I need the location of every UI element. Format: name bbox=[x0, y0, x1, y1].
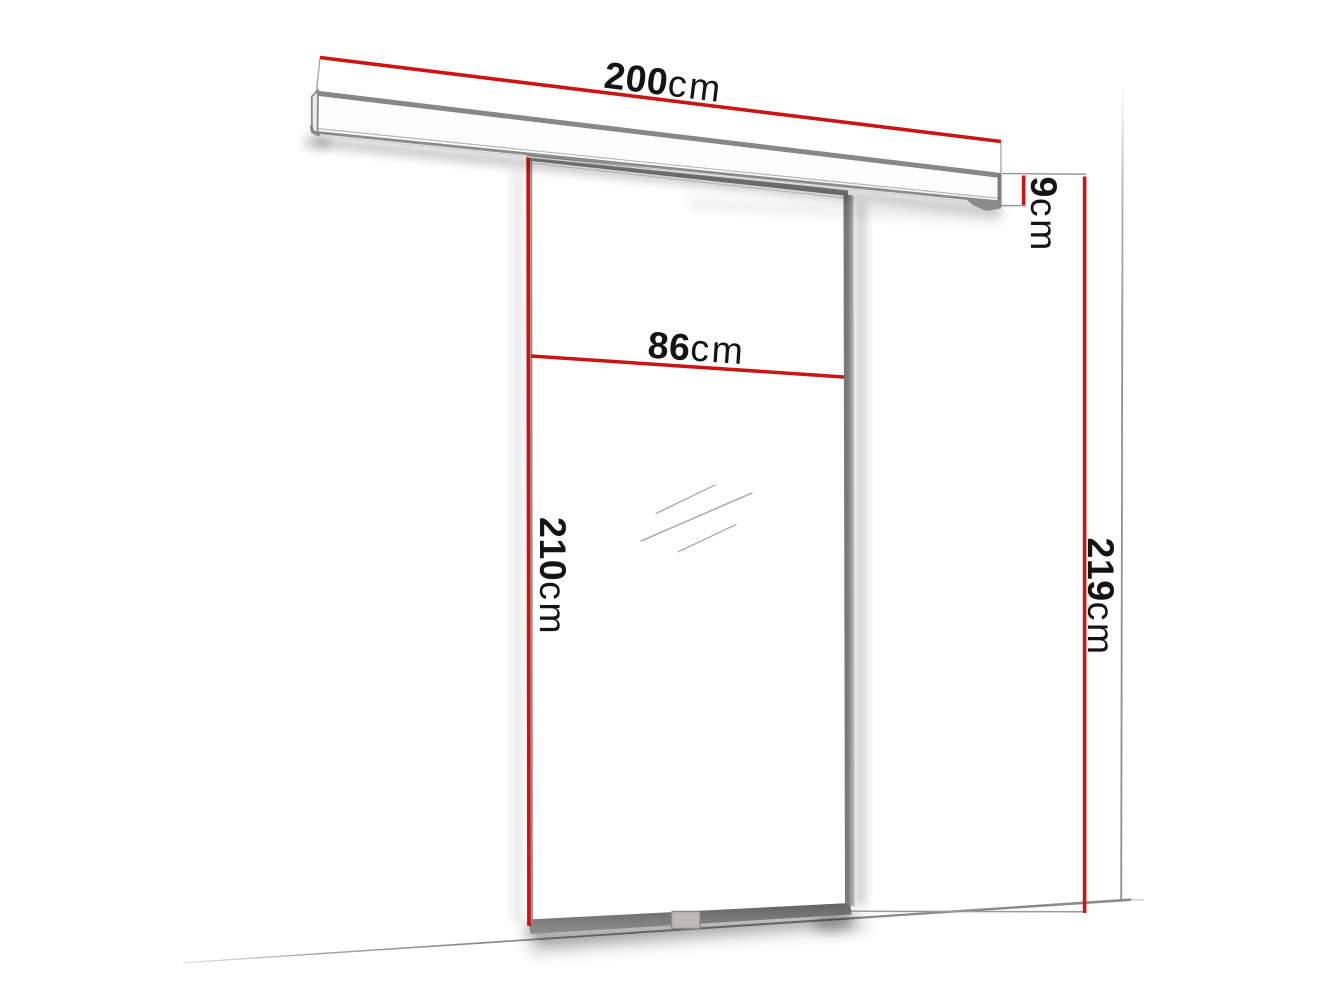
svg-text:9cm: 9cm bbox=[1023, 177, 1065, 253]
svg-text:210cm: 210cm bbox=[532, 517, 574, 636]
svg-text:219cm: 219cm bbox=[1080, 538, 1122, 657]
svg-text:86cm: 86cm bbox=[646, 324, 746, 373]
